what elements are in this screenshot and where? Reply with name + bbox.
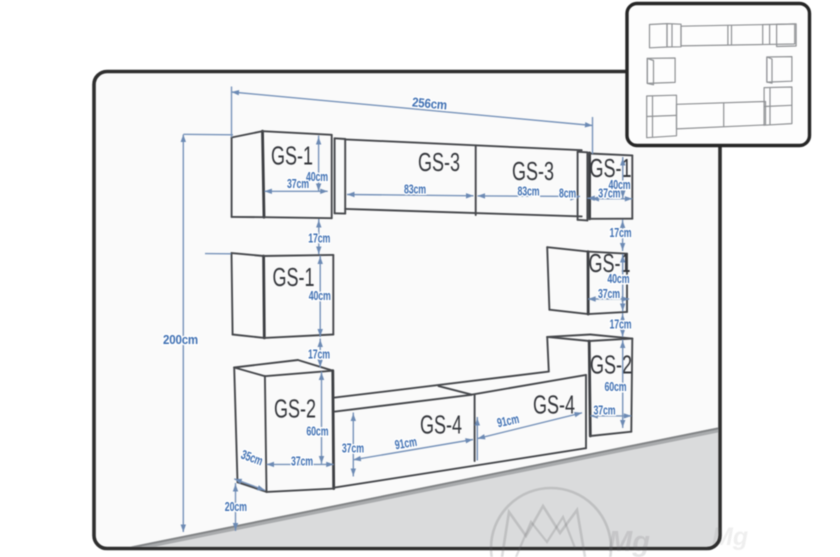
svg-text:17cm: 17cm: [610, 225, 632, 240]
svg-text:37cm: 37cm: [342, 440, 364, 455]
svg-text:GS-2: GS-2: [274, 394, 316, 424]
svg-text:Mg: Mg: [608, 526, 650, 557]
svg-text:40cm: 40cm: [306, 169, 328, 184]
svg-text:17cm: 17cm: [610, 317, 632, 332]
svg-text:GS-3: GS-3: [512, 156, 554, 186]
svg-text:17cm: 17cm: [308, 347, 330, 362]
svg-text:37cm: 37cm: [291, 454, 313, 469]
svg-text:GS-1: GS-1: [271, 141, 313, 171]
svg-text:37cm: 37cm: [287, 176, 309, 191]
svg-text:17cm: 17cm: [308, 230, 330, 245]
svg-text:37cm: 37cm: [594, 402, 616, 417]
svg-text:83cm: 83cm: [404, 182, 426, 197]
svg-text:GS-4: GS-4: [420, 410, 462, 440]
svg-text:20cm: 20cm: [225, 499, 247, 514]
svg-text:GS-2: GS-2: [590, 350, 632, 380]
svg-text:37cm: 37cm: [598, 286, 620, 301]
svg-text:40cm: 40cm: [607, 271, 629, 286]
svg-text:GS-4: GS-4: [533, 390, 575, 420]
svg-text:60cm: 60cm: [306, 424, 328, 439]
svg-text:83cm: 83cm: [518, 183, 540, 198]
svg-text:60cm: 60cm: [605, 379, 627, 394]
svg-text:Mg: Mg: [712, 523, 748, 551]
svg-text:200cm: 200cm: [163, 332, 198, 347]
svg-text:37cm: 37cm: [598, 185, 620, 200]
svg-text:GS-3: GS-3: [418, 147, 460, 177]
svg-text:8cm: 8cm: [559, 186, 576, 201]
svg-text:40cm: 40cm: [309, 288, 331, 303]
